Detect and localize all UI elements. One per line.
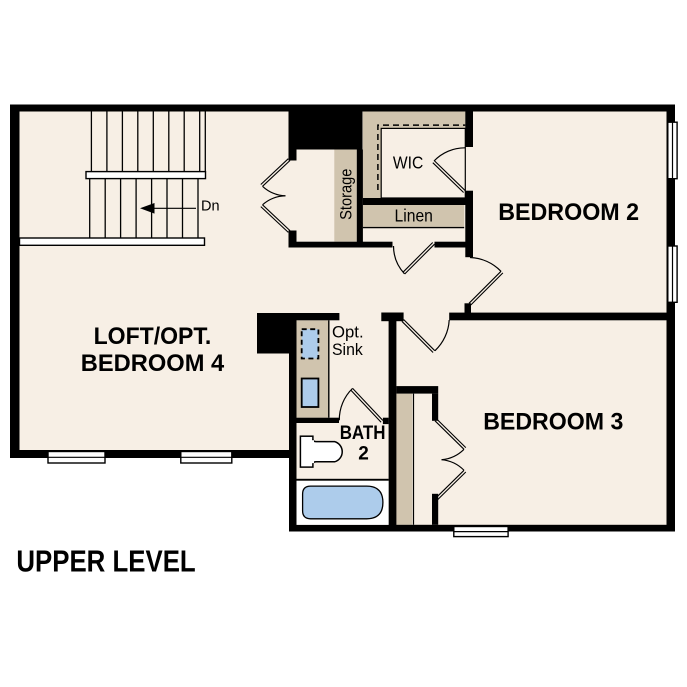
svg-text:BEDROOM 4: BEDROOM 4 — [81, 350, 225, 377]
svg-text:2: 2 — [358, 444, 369, 465]
svg-text:Storage: Storage — [336, 169, 355, 220]
svg-text:Sink: Sink — [332, 340, 363, 359]
svg-text:WIC: WIC — [393, 153, 423, 173]
svg-text:Dn: Dn — [201, 198, 220, 214]
svg-text:BATH: BATH — [340, 423, 386, 444]
svg-text:LOFT/OPT.: LOFT/OPT. — [94, 323, 212, 350]
svg-text:BEDROOM 2: BEDROOM 2 — [498, 199, 639, 226]
svg-text:Linen: Linen — [395, 205, 433, 225]
svg-text:BEDROOM 3: BEDROOM 3 — [483, 409, 623, 436]
svg-text:UPPER LEVEL: UPPER LEVEL — [16, 544, 195, 579]
svg-text:Opt.: Opt. — [332, 323, 364, 342]
